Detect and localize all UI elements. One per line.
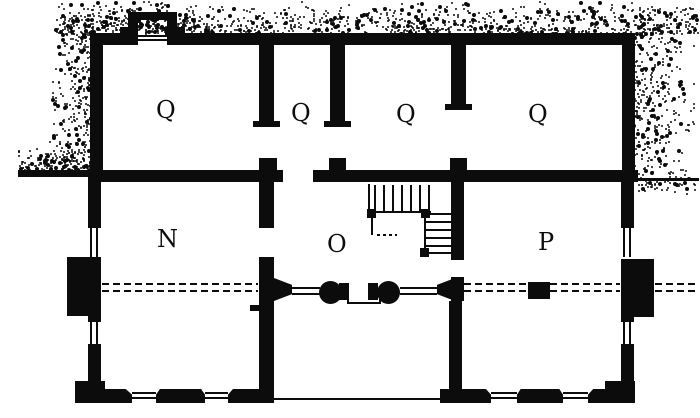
middle-wall-stub <box>450 158 467 171</box>
stair-tread <box>383 185 385 212</box>
stair-tread <box>428 185 430 212</box>
partition-o-p <box>449 301 462 403</box>
middle-wall <box>101 170 283 182</box>
colonnade-bracket <box>437 278 455 301</box>
bottom-wall-corner <box>605 381 635 403</box>
bottom-wall-pier <box>517 389 563 403</box>
ground-line-right <box>635 178 699 181</box>
overhead-dashed-line <box>655 290 699 292</box>
cellar-partition-foot <box>253 121 280 127</box>
middle-wall-stub <box>329 158 346 171</box>
window <box>623 322 625 344</box>
window <box>623 228 625 257</box>
stair-newel <box>367 209 376 218</box>
step-line <box>347 302 381 304</box>
stair-newel <box>421 209 430 218</box>
window <box>90 228 92 257</box>
right-wall-lower <box>621 182 634 228</box>
right-wall-upper <box>622 33 635 182</box>
colonnade-bracket <box>274 278 292 301</box>
cellar-partition <box>330 45 345 126</box>
earth-stipple-dots <box>55 0 57 2</box>
top-wall <box>167 33 635 45</box>
room-label-q4: Q <box>528 102 548 126</box>
left-wall-upper <box>90 33 103 178</box>
window <box>491 392 517 394</box>
bottom-wall-pier <box>75 389 132 403</box>
room-label-o: O <box>327 232 347 256</box>
chimney-left <box>67 257 101 316</box>
bulkhead-door-line <box>138 39 167 41</box>
room-label-q2: Q <box>291 101 311 125</box>
stair-tread <box>426 252 452 254</box>
partition-tick <box>250 305 259 311</box>
opening-threshold <box>273 398 449 400</box>
window <box>132 397 156 399</box>
post <box>528 282 550 299</box>
overhead-dashed-line <box>464 283 528 285</box>
stair-tread <box>374 185 376 212</box>
stair-rail <box>371 218 373 235</box>
cellar-partition <box>259 45 274 126</box>
window <box>90 322 92 344</box>
overhead-dashed-line <box>655 283 699 285</box>
cellar-partition-foot <box>445 104 472 110</box>
window <box>491 397 517 399</box>
room-label-q3: Q <box>396 102 416 126</box>
colonnade-rail <box>292 293 320 295</box>
overhead-dashed-line <box>464 290 528 292</box>
window <box>205 397 228 399</box>
room-label-q1: Q <box>156 98 176 122</box>
stair-tread <box>426 245 452 247</box>
window <box>629 228 631 257</box>
cellar-partition-foot <box>324 121 351 127</box>
stair-tread <box>401 185 403 212</box>
overhead-dashed-line <box>102 283 258 285</box>
stair-tread <box>426 237 452 239</box>
bulkhead-door-line <box>138 35 167 37</box>
bottom-wall-pier <box>156 389 205 403</box>
overhead-dashed-line <box>102 290 258 292</box>
earth-stipple-dots <box>18 140 20 142</box>
earth-stipple-dots <box>632 6 634 8</box>
stair-tread <box>426 221 452 223</box>
colonnade-rail <box>400 293 437 295</box>
window <box>96 322 98 344</box>
partition-n-o <box>259 257 274 403</box>
cellar-partition <box>451 45 466 109</box>
colonnade-rail <box>292 287 320 289</box>
earth-stipple-dots <box>636 182 638 184</box>
floor-plan: Q Q Q Q N O P <box>0 0 700 418</box>
stair-tread <box>419 185 421 212</box>
partition-n-o <box>259 182 274 228</box>
stair-break-line <box>377 234 397 236</box>
window <box>96 228 98 257</box>
stair-newel <box>420 248 429 257</box>
room-label-p: P <box>538 230 554 254</box>
window <box>132 392 156 394</box>
overhead-dashed-line <box>550 290 620 292</box>
window <box>629 322 631 344</box>
window <box>563 397 588 399</box>
window <box>563 392 588 394</box>
middle-wall-stub <box>259 158 277 171</box>
window <box>205 392 228 394</box>
stair-tread <box>392 185 394 212</box>
ground-line-left <box>18 170 90 177</box>
chimney-right <box>621 259 654 317</box>
partition-o-p <box>451 182 464 260</box>
earth-stipple-dots <box>48 14 50 16</box>
bottom-wall-pier <box>440 389 491 403</box>
stair-tread <box>410 185 412 212</box>
room-label-n: N <box>157 227 178 251</box>
left-wall-lower <box>88 170 101 228</box>
stair-tread <box>426 229 452 231</box>
column <box>377 281 400 304</box>
overhead-dashed-line <box>550 283 620 285</box>
middle-wall <box>313 170 638 182</box>
earth-stipple-dots <box>98 0 100 2</box>
colonnade-rail <box>400 287 437 289</box>
